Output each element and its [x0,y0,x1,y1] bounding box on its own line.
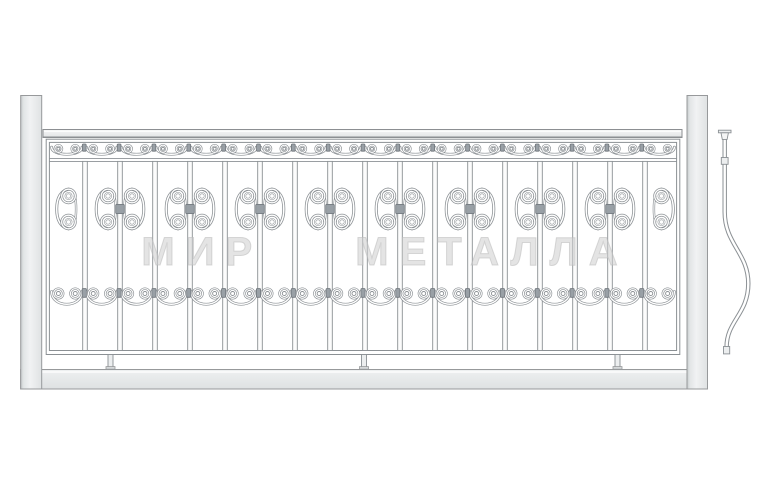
foot-supports [106,355,622,370]
vertical-bar [503,161,508,350]
vertical-bar [608,161,613,350]
foot-support [613,355,622,370]
vertical-bar [573,161,578,350]
foot-support [360,355,369,370]
vertical-bar [258,161,263,350]
vertical-bar [118,161,123,350]
foot-support [106,355,115,370]
vertical-bar [538,161,543,350]
product-drawing-canvas: МИР МЕТАЛЛА [0,0,770,500]
vertical-bar [398,161,403,350]
vertical-bar [328,161,333,350]
collar [721,158,728,165]
vertical-bar [433,161,438,350]
vertical-bar [468,161,473,350]
right-post [687,96,708,390]
edge-half-scroll-left [57,189,76,229]
top-handrail [43,130,682,138]
vertical-bar [223,161,228,350]
vertical-bar [643,161,648,350]
vertical-bar [153,161,158,350]
edge-half-scroll-right [654,189,673,229]
left-post [21,96,42,390]
vertical-bar [188,161,193,350]
top-scroll-band [52,144,675,154]
vertical-bars [83,161,648,350]
baluster-foot [724,347,730,354]
vertical-bar [83,161,88,350]
vertical-bar [363,161,368,350]
railing-drawing [0,0,770,500]
side-profile-detail [718,130,748,354]
base-slab [21,370,708,390]
vertical-bar [293,161,298,350]
